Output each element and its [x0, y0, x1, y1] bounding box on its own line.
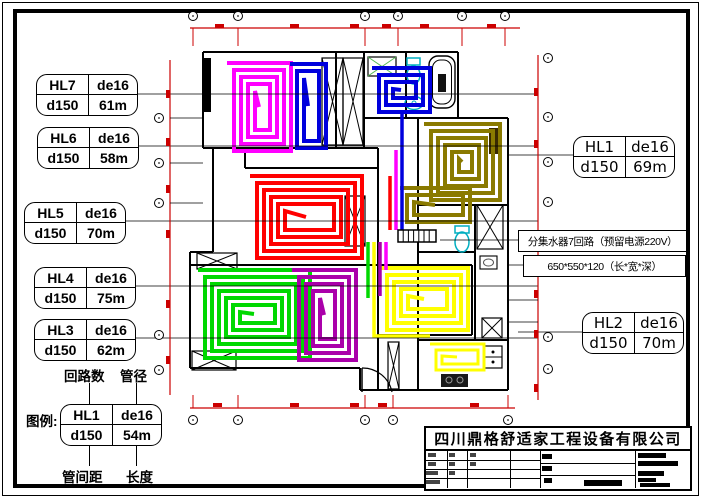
loop-id: HL6	[38, 128, 90, 148]
loop-label-box-legend: HL1 de16 d150 54m	[60, 404, 162, 446]
pipe-size: de16	[89, 75, 137, 95]
pipe-size: de16	[87, 320, 135, 340]
loop-id: HL3	[35, 320, 87, 340]
loop-label-box-hl7: HL7 de16 d150 61m	[36, 74, 138, 116]
heating-coil-HL2	[380, 268, 468, 330]
legend-connector	[89, 444, 90, 466]
title-block-graphic	[428, 462, 436, 466]
callout-loops-count: 回路数	[64, 365, 105, 385]
title-block-graphic	[426, 480, 440, 484]
loop-id: HL5	[25, 203, 77, 223]
loop-label-box-hl6: HL6 de16 d150 58m	[37, 127, 139, 169]
basin	[480, 256, 497, 269]
title-block-graphic	[470, 462, 476, 466]
title-block-graphic	[449, 471, 455, 475]
title-block-graphic	[428, 453, 436, 457]
loop-length: 69m	[626, 157, 674, 177]
loop-length: 61m	[89, 95, 137, 115]
callout-length: 长度	[126, 466, 153, 486]
pipe-spacing: d150	[61, 425, 113, 445]
pipe-spacing: d150	[37, 95, 89, 115]
legend-connector	[136, 444, 137, 466]
heating-coil-HL7	[227, 63, 291, 151]
title-block-graphic	[542, 454, 552, 459]
loop-length: 54m	[113, 425, 161, 445]
title-block-graphic	[638, 461, 678, 466]
title-block-graphic	[584, 480, 622, 486]
loop-length: 70m	[77, 223, 125, 243]
legend-connector	[89, 383, 90, 404]
manifold-note-line1: 分集水器7回路（预留电源220V）	[518, 230, 687, 252]
loop-length: 58m	[90, 148, 138, 168]
title-block-graphic	[470, 453, 476, 457]
title-block-graphic	[542, 466, 552, 471]
pipe-size: de16	[635, 313, 683, 333]
heating-coil-HL6	[290, 64, 326, 148]
title-block-graphic	[426, 469, 540, 470]
pipe-spacing: d150	[35, 340, 87, 360]
pipe-size: de16	[626, 137, 674, 157]
loop-label-box-hl3: HL3 de16 d150 62m	[34, 319, 136, 361]
pipe-spacing: d150	[38, 148, 90, 168]
loop-label-box-hl4: HL4 de16 d150 75m	[34, 267, 136, 309]
cad-floor-heating-drawing: HL7 de16 d150 61m HL6 de16 d150 58m HL5 …	[0, 0, 701, 498]
title-block-graphic	[540, 451, 541, 488]
title-block-graphic	[638, 471, 664, 476]
pipe-spacing: d150	[574, 157, 626, 177]
title-block-graphic	[540, 463, 635, 464]
loop-id: HL2	[583, 313, 635, 333]
pipe-spacing: d150	[583, 333, 635, 353]
title-block-graphic	[449, 462, 455, 466]
pipe-spacing: d150	[25, 223, 77, 243]
title-block-graphic	[540, 475, 635, 476]
loop-label-box-hl2: HL2 de16 d150 70m	[582, 312, 684, 354]
loop-id: HL1	[574, 137, 626, 157]
loop-length: 62m	[87, 340, 135, 360]
heating-coil-HL6	[372, 68, 430, 112]
manifold-note-line2: 650*550*120（长*宽*深）	[523, 255, 686, 277]
title-block-graphic	[640, 483, 670, 487]
company-name: 四川鼎格舒适家工程设备有限公司	[426, 428, 690, 451]
title-block-graphic	[426, 478, 540, 479]
pipe-size: de16	[113, 405, 161, 425]
pipe-size: de16	[87, 268, 135, 288]
loop-id: HL7	[37, 75, 89, 95]
pipe-size: de16	[77, 203, 125, 223]
loop-length: 70m	[635, 333, 683, 353]
loop-label-box-hl5: HL5 de16 d150 70m	[24, 202, 126, 244]
callout-pipe-spacing: 管间距	[62, 466, 103, 486]
stove	[441, 374, 468, 387]
heating-coil-HL4	[198, 270, 310, 358]
title-block-graphic	[635, 451, 636, 488]
loop-length: 75m	[87, 288, 135, 308]
title-block-graphic	[638, 453, 666, 458]
loop-label-box-hl1: HL1 de16 d150 69m	[573, 136, 675, 178]
title-block-grid	[426, 451, 690, 488]
heating-coil-HL2	[430, 344, 484, 370]
loop-id: HL1	[61, 405, 113, 425]
title-block: 四川鼎格舒适家工程设备有限公司	[424, 426, 692, 491]
toilet	[407, 58, 420, 65]
title-block-graphic	[426, 460, 540, 461]
title-block-graphic	[449, 453, 455, 457]
title-block-graphic	[426, 471, 438, 475]
loop-id: HL4	[35, 268, 87, 288]
pipe-size: de16	[90, 128, 138, 148]
heating-coils	[198, 63, 500, 370]
legend-title: 图例:	[26, 410, 58, 430]
title-block-graphic	[544, 478, 552, 483]
pipe-spacing: d150	[35, 288, 87, 308]
callout-pipe-diameter: 管径	[120, 365, 147, 385]
title-block-graphic	[638, 478, 656, 482]
legend-connector	[136, 383, 137, 404]
